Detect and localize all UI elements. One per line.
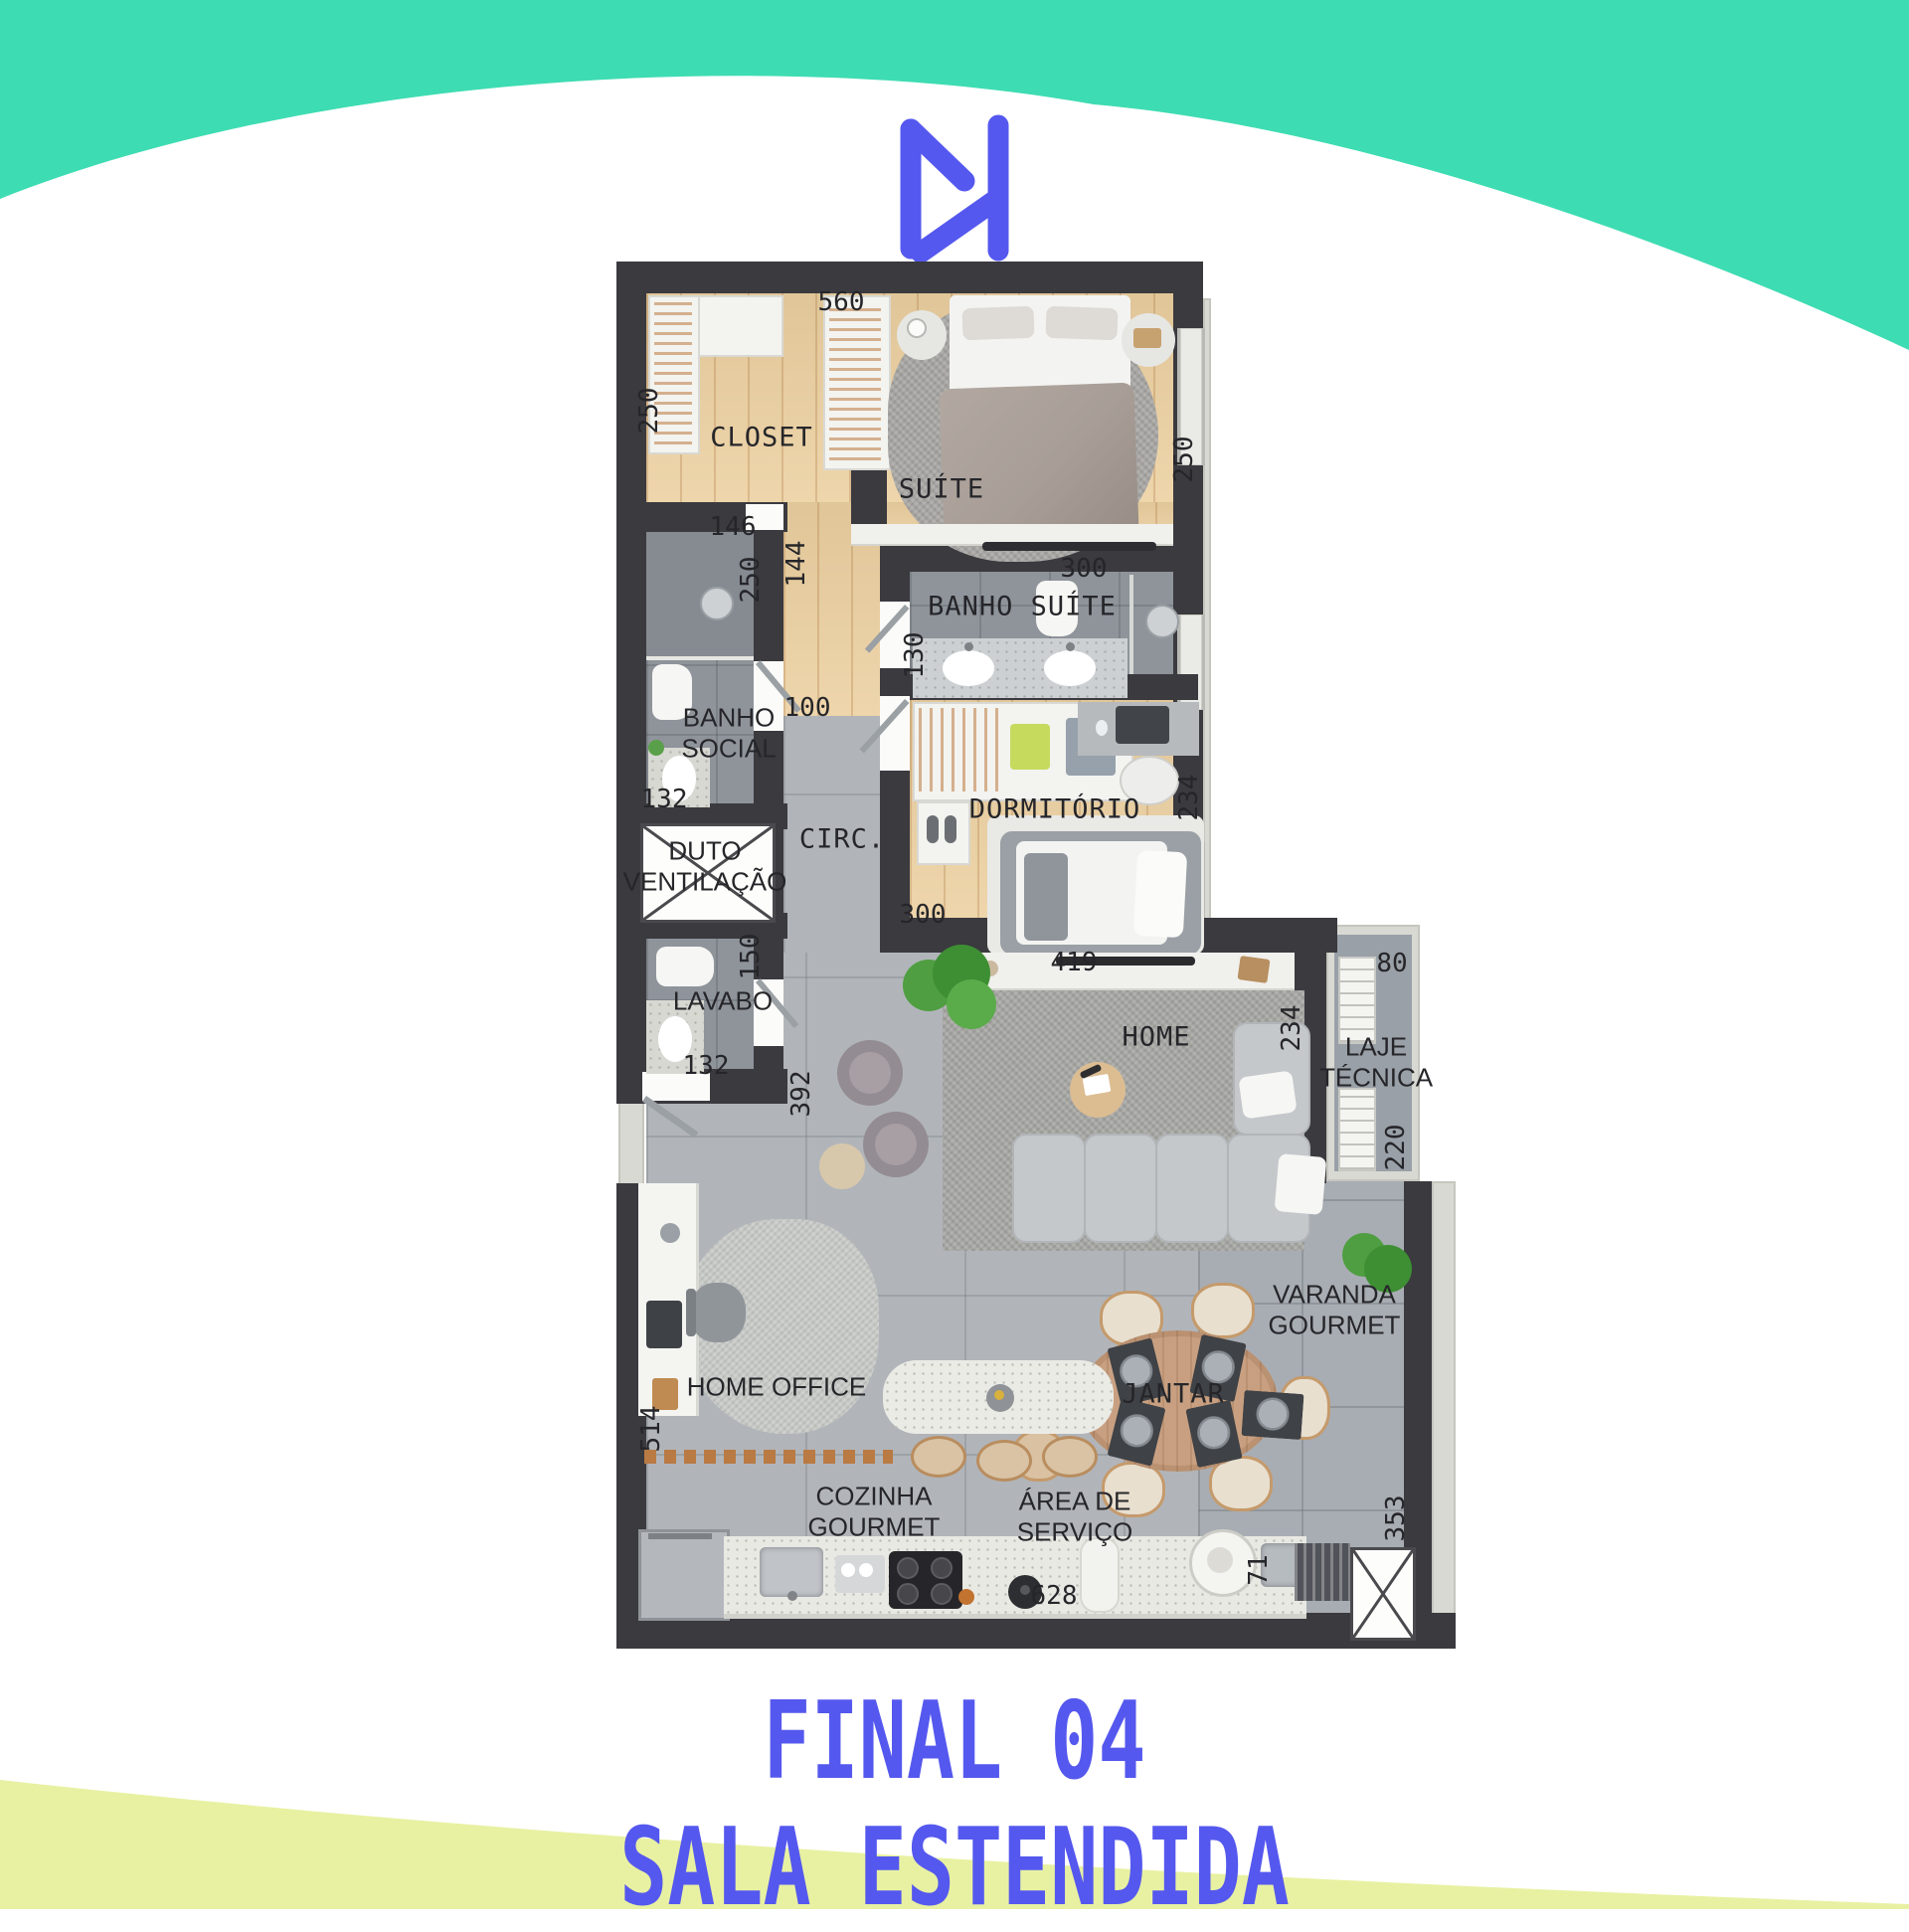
home-side-table — [819, 1143, 865, 1189]
dim-kitchen-628: 628 — [1031, 1581, 1078, 1611]
room-label-banho-social-line2: SOCIAL — [681, 733, 776, 764]
dorm-bed-pillow — [1133, 850, 1187, 938]
room-label-duto: DUTOVENTILAÇÃO — [623, 835, 787, 896]
banho-suite-faucet-right — [1066, 642, 1075, 651]
dorm-wardrobe-stack-green — [1010, 724, 1050, 770]
home-armchair-1-cushion — [849, 1052, 891, 1094]
dim-text: 71 — [1244, 1554, 1274, 1585]
island-stool-1 — [911, 1436, 966, 1478]
tray-cup-1 — [841, 1563, 855, 1577]
dim-laje-220: 220 — [1381, 1125, 1411, 1171]
dim-dorm-300: 300 — [900, 900, 947, 930]
service-cabinet — [1295, 1543, 1350, 1601]
dim-text: 560 — [818, 287, 865, 317]
wall-varanda-right-texture — [1432, 1181, 1456, 1649]
room-label-varanda: VARANDAGOURMET — [1269, 1279, 1401, 1339]
cooktop-burner-4 — [931, 1583, 953, 1605]
room-label-home-text: HOME — [1122, 1022, 1190, 1053]
dim-servico-71: 71 — [1244, 1554, 1274, 1585]
dim-text: 220 — [1381, 1125, 1411, 1171]
dim-closet-146: 146 — [710, 512, 757, 542]
dorm-shoe-box — [917, 801, 970, 865]
place-setting-3 — [1241, 1390, 1303, 1440]
dim-text: 419 — [1051, 948, 1098, 977]
dim-corridor-144: 144 — [781, 541, 811, 588]
service-shaft — [1350, 1547, 1416, 1641]
sofa-module-1 — [1012, 1134, 1086, 1243]
plant-1-leaf-c — [947, 979, 996, 1029]
closet-wardrobe-column-clothes — [829, 301, 881, 460]
dim-banho-social-250: 250 — [736, 557, 766, 604]
fridge — [638, 1529, 730, 1621]
room-label-cozinha-line2: GOURMET — [808, 1511, 941, 1542]
shower-glass-divider — [646, 656, 756, 660]
cooktop-burner-1 — [897, 1557, 919, 1579]
home-office-laptop-icon — [646, 1301, 682, 1348]
dim-text: 234 — [1277, 1005, 1306, 1052]
kitchen-sink — [760, 1547, 823, 1597]
dim-text: 150 — [736, 934, 766, 980]
dim-text: 300 — [1061, 554, 1108, 584]
washer-drum — [1207, 1547, 1233, 1573]
lavabo-toilet — [656, 947, 714, 986]
banho-suite-sink-left — [943, 650, 994, 686]
room-label-duto-line1: DUTO — [623, 835, 787, 866]
dim-text: 100 — [784, 693, 831, 723]
dim-text: 144 — [781, 541, 811, 588]
dim-text: 514 — [636, 1406, 666, 1453]
room-label-home-office: HOME OFFICE — [687, 1372, 867, 1403]
shower-head-icon — [1145, 605, 1179, 638]
floor-transition-wood-strip — [644, 1450, 893, 1464]
room-label-circ-text: CIRC. — [799, 824, 885, 855]
room-label-closet-text: CLOSET — [710, 423, 813, 453]
room-label-banho-social-line1: BANHO — [681, 702, 776, 733]
room-label-suite-text: SUÍTE — [899, 474, 984, 505]
plan-title: FINAL 04 SALA ESTENDIDA — [0, 1678, 1909, 1932]
kettle-lid-icon — [1020, 1585, 1030, 1595]
dim-top-560: 560 — [818, 287, 865, 317]
room-label-laje-tecnica: LAJETÉCNICA — [1319, 1031, 1433, 1092]
dorm-shoe-left — [927, 815, 939, 843]
island-stool-3 — [1042, 1436, 1098, 1478]
dim-text: 250 — [634, 388, 664, 435]
plan-title-line1: FINAL 04 — [249, 1678, 1661, 1805]
dim-text: 132 — [641, 785, 688, 814]
dim-closet-250: 250 — [634, 388, 664, 435]
fridge-handle — [648, 1533, 712, 1539]
room-label-circ: CIRC. — [799, 824, 885, 855]
banho-social-shower-head-icon — [700, 587, 734, 620]
brand-logo-n-icon — [875, 95, 1034, 270]
dim-varanda-353: 353 — [1381, 1495, 1411, 1542]
suite-duvet — [939, 383, 1138, 541]
dim-dorm-234: 234 — [1174, 775, 1204, 821]
dim-text: 300 — [900, 900, 947, 930]
room-label-servico-line1: ÁREA DE — [1017, 1486, 1133, 1516]
island-stool-2 — [976, 1440, 1032, 1482]
banho-suite-shower-partition — [1129, 575, 1133, 674]
kitchen-faucet-icon — [787, 1591, 797, 1601]
home-office-lamp-icon — [660, 1223, 680, 1243]
cooktop-burner-2 — [931, 1557, 953, 1579]
room-label-laje-line2: TÉCNICA — [1319, 1062, 1433, 1093]
tray-cup-2 — [859, 1563, 873, 1577]
dim-text: 132 — [683, 1051, 730, 1081]
room-label-banho-social: BANHOSOCIAL — [681, 702, 776, 763]
room-label-laje-line1: LAJE — [1319, 1031, 1433, 1062]
dim-banho-social-132: 132 — [641, 785, 688, 814]
sofa-pillow-2 — [1275, 1153, 1327, 1215]
dim-laje-80: 80 — [1376, 949, 1407, 978]
room-label-jantar: JANTAR — [1122, 1379, 1225, 1410]
room-label-home-office-text: HOME OFFICE — [687, 1372, 867, 1402]
wall-top — [616, 262, 1203, 293]
room-label-banho-suite: BANHO SUÍTE — [928, 592, 1117, 622]
suite-nightstand-book — [1133, 328, 1161, 348]
dim-text: 130 — [900, 632, 930, 679]
banho-social-plant-icon — [648, 740, 664, 756]
room-label-cozinha-line1: COZINHA — [808, 1481, 941, 1511]
plan-title-line2: SALA ESTENDIDA — [249, 1805, 1661, 1931]
room-label-dormitorio: DORMITÓRIO — [969, 794, 1141, 825]
room-label-suite: SUÍTE — [899, 474, 984, 505]
water-purifier — [1080, 1537, 1120, 1613]
room-label-closet: CLOSET — [710, 423, 813, 453]
service-shaft-x-mark-icon — [1353, 1550, 1413, 1638]
room-label-varanda-line1: VARANDA — [1269, 1279, 1401, 1310]
room-label-servico: ÁREA DESERVIÇO — [1017, 1486, 1133, 1546]
dim-home-234: 234 — [1277, 1005, 1306, 1052]
wall-left-texture — [618, 1100, 644, 1185]
sofa-module-2 — [1084, 1134, 1157, 1243]
dim-text: 353 — [1381, 1495, 1411, 1542]
dorm-wardrobe-clothes — [919, 708, 1000, 791]
suite-lamp-left-icon — [907, 318, 927, 338]
dim-text: 250 — [736, 557, 766, 604]
dim-lavabo-132: 132 — [683, 1051, 730, 1081]
dim-lavabo-150: 150 — [736, 934, 766, 980]
room-label-servico-line2: SERVIÇO — [1017, 1516, 1133, 1547]
room-label-jantar-text: JANTAR — [1122, 1379, 1225, 1410]
dim-text: 234 — [1174, 775, 1204, 821]
dorm-laptop-icon — [1116, 706, 1169, 744]
dorm-mouse-icon — [1096, 720, 1108, 736]
dim-suite-250: 250 — [1169, 437, 1199, 483]
room-label-varanda-line2: GOURMET — [1269, 1310, 1401, 1340]
home-office-chair-back — [686, 1289, 696, 1336]
cooktop-burner-3 — [897, 1583, 919, 1605]
island-fruit — [994, 1390, 1004, 1400]
dim-banho-suite-300: 300 — [1061, 554, 1108, 584]
sofa-module-3 — [1155, 1134, 1229, 1243]
laje-ac-unit-bottom — [1338, 1088, 1376, 1171]
dining-chair-2 — [1191, 1283, 1255, 1338]
suite-soundbar — [982, 542, 1156, 551]
room-label-lavabo-text: LAVABO — [673, 986, 773, 1016]
room-label-banho-suite-text: BANHO SUÍTE — [928, 592, 1117, 622]
dim-text: 392 — [786, 1071, 816, 1118]
dim-living-514: 514 — [636, 1406, 666, 1453]
banho-suite-sink-right — [1044, 650, 1096, 686]
suite-pillow-left — [961, 306, 1034, 340]
dim-circ-100: 100 — [784, 693, 831, 723]
counter-flower-icon — [958, 1589, 974, 1605]
dim-text: 250 — [1169, 437, 1199, 483]
sofa-pillow-1 — [1238, 1070, 1297, 1119]
home-office-chair — [690, 1283, 746, 1342]
home-decor-book — [1237, 956, 1270, 983]
dim-text: 146 — [710, 512, 757, 542]
dim-living-392: 392 — [786, 1071, 816, 1118]
dim-banho-suite-130: 130 — [900, 632, 930, 679]
dorm-bed-throw — [1024, 853, 1068, 941]
dim-text: 80 — [1376, 949, 1407, 978]
room-label-home: HOME — [1122, 1022, 1190, 1053]
banho-suite-faucet-left — [964, 642, 973, 651]
home-armchair-2-cushion — [875, 1124, 917, 1165]
room-label-dormitorio-text: DORMITÓRIO — [969, 794, 1141, 825]
suite-pillow-right — [1045, 306, 1118, 340]
room-label-cozinha: COZINHAGOURMET — [808, 1481, 941, 1541]
room-label-duto-line2: VENTILAÇÃO — [623, 866, 787, 897]
room-label-lavabo: LAVABO — [673, 986, 773, 1017]
dim-text: 628 — [1031, 1581, 1078, 1611]
closet-shoe-shelf — [698, 295, 783, 357]
dorm-shoe-right — [945, 815, 956, 843]
dim-home-419: 419 — [1051, 948, 1098, 977]
